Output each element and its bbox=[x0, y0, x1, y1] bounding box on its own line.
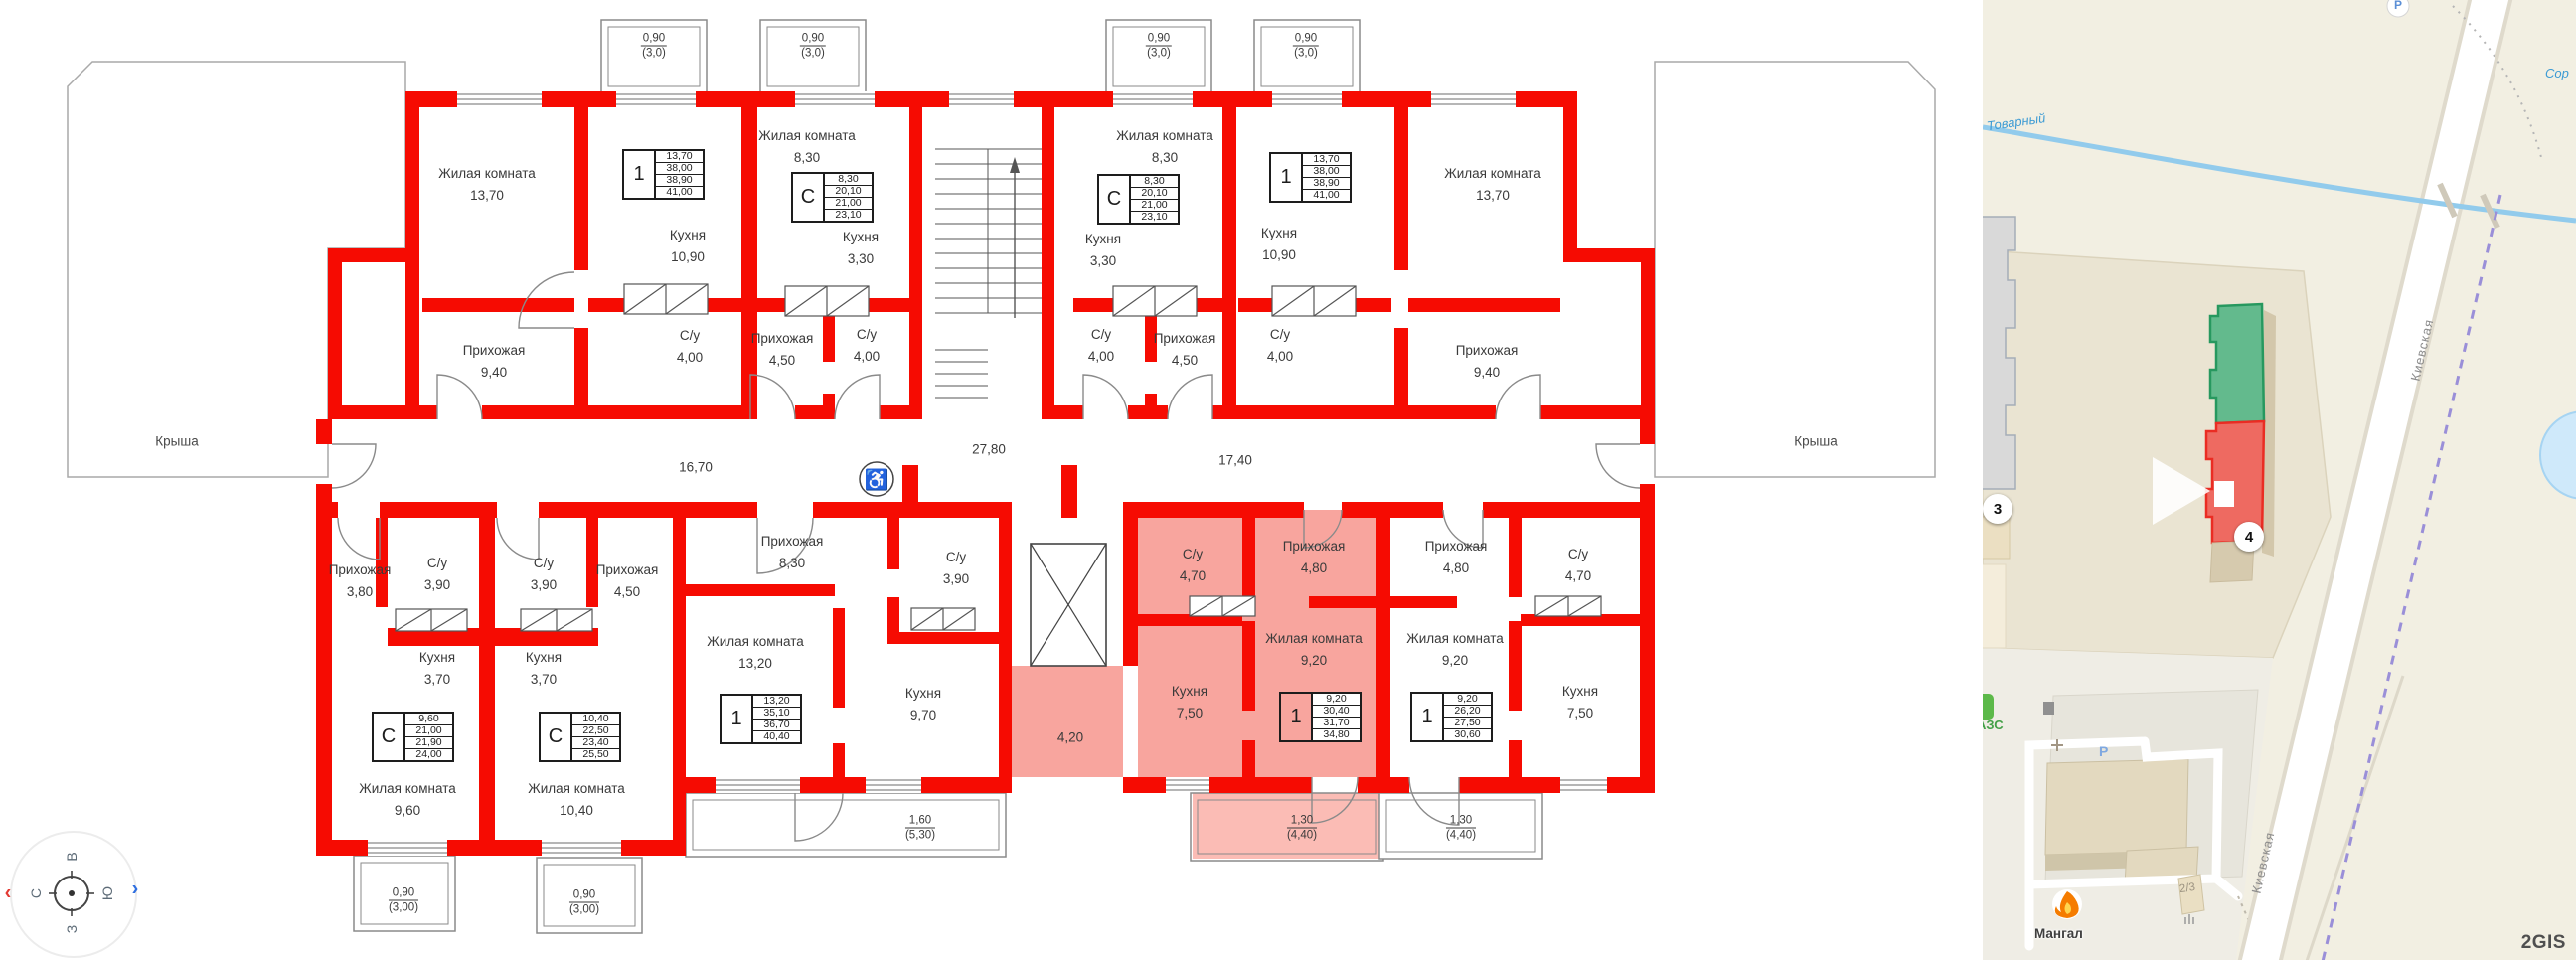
map-drawing bbox=[1983, 0, 2576, 960]
room-label: С/у3,90 bbox=[531, 553, 557, 596]
building-section-green[interactable] bbox=[2210, 304, 2264, 423]
room-label: Кухня10,90 bbox=[670, 225, 706, 268]
balcony-label: 0,90(3,00) bbox=[569, 888, 599, 917]
room-label: С/у4,70 bbox=[1565, 544, 1591, 587]
room-label: С/у4,70 bbox=[1180, 544, 1206, 587]
balcony-label: 0,90(3,0) bbox=[1146, 32, 1172, 61]
room-label: Прихожая4,50 bbox=[1154, 328, 1216, 372]
room-label: Жилая комната9,20 bbox=[1406, 628, 1504, 672]
map-building bbox=[2045, 759, 2188, 855]
prev-arrow-icon[interactable]: ‹ bbox=[5, 882, 12, 905]
room-label: Кухня7,50 bbox=[1172, 681, 1207, 724]
corridor-area-label: 16,70 bbox=[679, 460, 713, 475]
balcony-label: 0,90(3,0) bbox=[641, 32, 667, 61]
room-label: Жилая комната10,40 bbox=[528, 778, 625, 822]
compass-letter-bottom: З bbox=[64, 925, 80, 933]
gas-station-icon[interactable] bbox=[1983, 694, 1994, 720]
2gis-logo: 2GIS bbox=[2521, 932, 2566, 954]
balcony-label: 1,30(4,40) bbox=[1287, 814, 1317, 843]
room-label: Прихожая4,50 bbox=[751, 328, 814, 372]
room-label: Кухня3,30 bbox=[1085, 229, 1121, 272]
next-arrow-icon[interactable]: › bbox=[132, 879, 139, 901]
stairs bbox=[935, 149, 1042, 398]
room-label: Жилая комната9,20 bbox=[1265, 628, 1363, 672]
compass-letter-left: С bbox=[28, 888, 44, 898]
room-label: Жилая комната9,60 bbox=[359, 778, 456, 822]
parking-top-label: P bbox=[2394, 0, 2402, 12]
compass-letter-right: Ю bbox=[99, 886, 115, 900]
apartment-info-table: С9,6021,0021,9024,00 bbox=[372, 712, 454, 762]
building-marker-4[interactable]: 4 bbox=[2234, 522, 2264, 552]
room-label: Кухня10,90 bbox=[1261, 223, 1297, 266]
room-label: Кухня3,70 bbox=[526, 647, 562, 691]
corridor-area-label: 4,20 bbox=[1057, 730, 1083, 745]
balcony-label: 0,90(3,0) bbox=[1293, 32, 1319, 61]
gas-station-label: АЗС bbox=[1983, 718, 2004, 732]
room-label: Кухня3,30 bbox=[843, 227, 879, 270]
clipped-place-label: Сор bbox=[2545, 66, 2569, 80]
room-label: С/у3,90 bbox=[943, 547, 969, 590]
house-number-label: 2/3 bbox=[2178, 881, 2196, 895]
compass: В С Ю З ‹ › bbox=[6, 827, 139, 960]
balcony-label: 1,30(4,40) bbox=[1446, 814, 1476, 843]
roof-right-outline bbox=[1655, 62, 1935, 477]
wheelchair-glyph: ♿ bbox=[865, 468, 889, 493]
room-label: С/у3,90 bbox=[424, 553, 450, 596]
room-label: Жилая комната13,70 bbox=[1444, 163, 1541, 207]
room-label: Прихожая9,40 bbox=[1456, 340, 1519, 384]
room-label: Прихожая8,30 bbox=[761, 531, 824, 574]
apartment-info-table: 113,7038,0038,9041,00 bbox=[1269, 152, 1352, 203]
roof-label-left: Крыша bbox=[155, 434, 198, 449]
balcony-label: 0,90(3,0) bbox=[800, 32, 826, 61]
room-label: С/у4,00 bbox=[1267, 324, 1293, 368]
room-label: Жилая комната13,20 bbox=[707, 631, 804, 675]
compass-reticle bbox=[6, 827, 139, 960]
room-label: Прихожая4,80 bbox=[1283, 536, 1346, 579]
trash-icon bbox=[2043, 702, 2054, 715]
room-label: Кухня3,70 bbox=[419, 647, 455, 691]
building-marker-3[interactable]: 3 bbox=[1983, 494, 2012, 524]
elevator-shaft bbox=[1031, 544, 1106, 666]
floor-plan-drawing bbox=[0, 0, 1983, 960]
corridor-area-label: 17,40 bbox=[1218, 453, 1252, 468]
room-label: Кухня9,70 bbox=[905, 683, 941, 726]
room-label: Прихожая4,50 bbox=[596, 560, 659, 603]
room-label: Жилая комната13,70 bbox=[438, 163, 536, 207]
room-label: Жилая комната8,30 bbox=[758, 125, 856, 169]
room-label: С/у4,00 bbox=[854, 324, 880, 368]
balcony-label: 0,90(3,00) bbox=[389, 886, 418, 915]
room-label: Прихожая4,80 bbox=[1425, 536, 1488, 579]
roof-label-right: Крыша bbox=[1794, 434, 1837, 449]
room-label: Прихожая9,40 bbox=[463, 340, 526, 384]
apartment-info-table: 113,2035,1036,7040,40 bbox=[720, 694, 802, 744]
room-label: С/у4,00 bbox=[677, 325, 703, 369]
room-label: С/у4,00 bbox=[1088, 324, 1114, 368]
apartment-info-table-selected[interactable]: 19,2030,4031,7034,80 bbox=[1279, 692, 1362, 742]
map-pane[interactable]: Ручей Товарный Сор P Киевская Киевская А… bbox=[1983, 0, 2576, 960]
apartment-info-table: С8,3020,1021,0023,10 bbox=[791, 172, 874, 223]
map-quarter bbox=[1983, 250, 2331, 658]
map-building bbox=[1983, 564, 2006, 648]
apartment-info-table: 113,7038,0038,9041,00 bbox=[622, 149, 705, 200]
balcony-label: 1,60(5,30) bbox=[905, 814, 935, 843]
room-label: Прихожая3,80 bbox=[329, 560, 392, 603]
compass-letter-top: В bbox=[64, 852, 80, 861]
floor-plan-pane: ♿ Крыша Крыша Жилая комната13,70 Кухня10… bbox=[0, 0, 1983, 960]
room-label: Жилая комната8,30 bbox=[1116, 125, 1213, 169]
room-label: Кухня7,50 bbox=[1562, 681, 1598, 724]
apartment-info-table: С8,3020,1021,0023,10 bbox=[1097, 174, 1180, 225]
corridor-area-label: 27,80 bbox=[972, 442, 1006, 457]
bbq-label: Мангал bbox=[2034, 926, 2083, 941]
apartment-info-table: 19,2026,2027,5030,60 bbox=[1410, 692, 1493, 742]
parking-label: P bbox=[2099, 743, 2108, 759]
floor-plan-viewer: ♿ Крыша Крыша Жилая комната13,70 Кухня10… bbox=[0, 0, 2576, 960]
entrance-notch bbox=[2214, 481, 2234, 507]
apartment-info-table: С10,4022,5023,4025,50 bbox=[539, 712, 621, 762]
